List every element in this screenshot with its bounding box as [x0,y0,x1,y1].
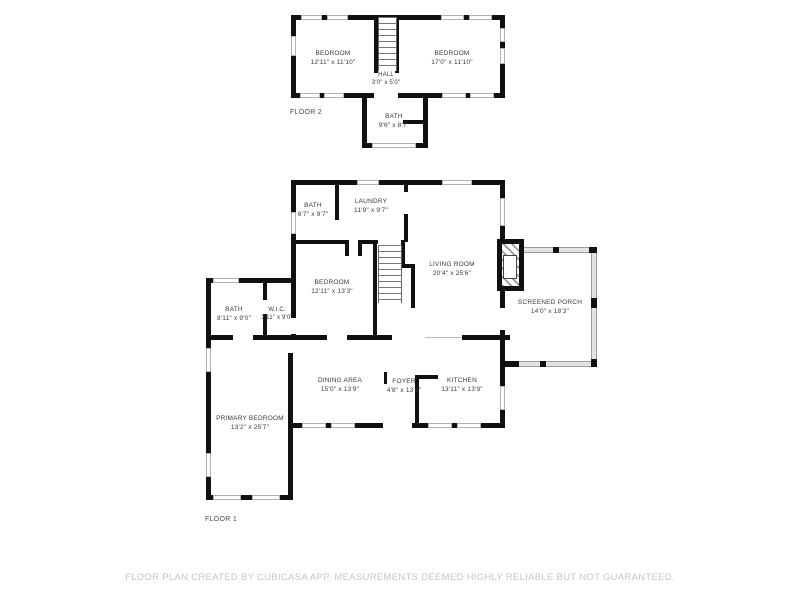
window [500,386,505,410]
floor2-label: FLOOR 2 [290,109,322,116]
room-dims: 12'11" x 11'10" [311,59,356,68]
wall [291,180,505,185]
footer-disclaimer: FLOOR PLAN CREATED BY CUBICASA APP. MEAS… [0,572,800,583]
room-dims: 4'8" x 13'9" [387,387,421,396]
room-name: HALL [372,71,400,79]
window [302,423,326,428]
window [291,212,296,234]
room-label-kitchen: KITCHEN 13'11" x 13'9" [441,377,483,395]
wall [291,240,347,244]
room-label-screened-porch: SCREENED PORCH 14'0" x 18'3" [518,299,582,317]
screen-post [591,359,597,367]
screen-wall [522,247,597,253]
room-name: SCREENED PORCH [518,299,582,308]
wall [345,240,349,256]
room-label-foyer: FOYER 4'8" x 13'9" [387,378,421,396]
room-label-bath-f2: BATH 9'6" x 8'7" [379,113,410,131]
room-label-bedroom-left: BEDROOM 12'11" x 11'10" [311,50,356,68]
cased-opening [425,337,462,338]
room-dims: 6'7" x 9'7" [298,211,329,220]
door-opening [327,335,347,340]
room-label-living-room: LIVING ROOM 20'4" x 25'6" [429,261,475,279]
window [500,198,505,226]
wall [335,180,339,220]
floor-plan-canvas: BEDROOM 12'11" x 11'10" BEDROOM 17'0" x … [0,0,800,600]
door-opening [500,308,505,330]
window [469,15,492,20]
screen-post [589,247,597,253]
fireplace-firebox [503,255,517,279]
wall [411,264,415,308]
door-opening [404,192,408,214]
window [357,180,379,185]
screen-post [591,298,597,308]
window [301,15,322,20]
wall [373,240,377,340]
room-dims: 15'0" x 13'9" [318,386,362,395]
front-door-opening [383,423,412,428]
room-label-hall: HALL 3'0" x 5'0" [372,71,400,87]
window [372,143,416,148]
room-label-dining-area: DINING AREA 15'0" x 13'9" [318,377,362,395]
window [442,93,466,98]
window [428,423,452,428]
window [457,423,481,428]
screen-post [553,247,559,253]
room-dims: 3'0" x 5'0" [372,79,400,87]
door-opening [233,335,253,340]
window [324,93,344,98]
room-label-bedroom-right: BEDROOM 17'0" x 11'10" [431,50,473,68]
room-name: BATH [298,202,329,211]
room-dims: 13'11" x 13'9" [441,386,483,395]
room-dims: 11'9" x 9'7" [354,207,388,216]
wall [291,15,296,98]
room-name: FOYER [387,378,421,387]
floor1-label: FLOOR 1 [205,516,237,523]
wall [362,93,367,148]
screen-post [505,361,519,367]
window [206,453,211,477]
room-name: LAUNDRY [354,198,388,207]
room-label-bath-primary: BATH 8'11" x 9'0" [217,306,251,324]
window [213,278,239,283]
room-dims: 20'4" x 25'6" [429,270,475,279]
room-name: KITCHEN [441,377,483,386]
staircase [378,17,397,71]
room-dims: 8'11" x 9'0" [217,315,251,324]
room-name: BEDROOM [431,50,473,59]
window [206,348,211,372]
room-name: BEDROOM [311,50,356,59]
room-dims: 12'11" x 13'3" [311,288,353,297]
room-dims: 13'2" x 25'7" [216,424,284,433]
room-label-wic: W.I.C. 3'11" x 9'0" [261,306,293,322]
window [331,423,355,428]
window [470,93,494,98]
window [327,15,348,20]
window [441,15,464,20]
room-dims: 3'11" x 9'0" [261,314,293,322]
room-name: BATH [217,306,251,315]
door-opening [392,335,425,340]
room-dims: 17'0" x 11'10" [431,59,473,68]
fireplace [497,239,524,291]
room-label-laundry: LAUNDRY 11'9" x 9'7" [354,198,388,216]
window [442,180,472,185]
window [213,495,241,500]
room-label-bedroom-f1: BEDROOM 12'11" x 13'3" [311,279,353,297]
room-name: BATH [379,113,410,122]
room-dims: 9'6" x 8'7" [379,122,410,131]
window [500,48,505,64]
room-label-primary-bedroom: PRIMARY BEDROOM 13'2" x 25'7" [216,415,284,433]
room-name: BEDROOM [311,279,353,288]
screen-post [540,361,546,367]
room-name: DINING AREA [318,377,362,386]
room-label-bath-upper: BATH 6'7" x 9'7" [298,202,329,220]
window [300,93,320,98]
staircase [378,245,402,303]
window [252,495,280,500]
room-name: PRIMARY BEDROOM [216,415,284,424]
room-dims: 14'0" x 18'3" [518,308,582,317]
room-name: LIVING ROOM [429,261,475,270]
window [500,28,505,42]
window [291,36,296,56]
room-name: W.I.C. [261,306,293,314]
